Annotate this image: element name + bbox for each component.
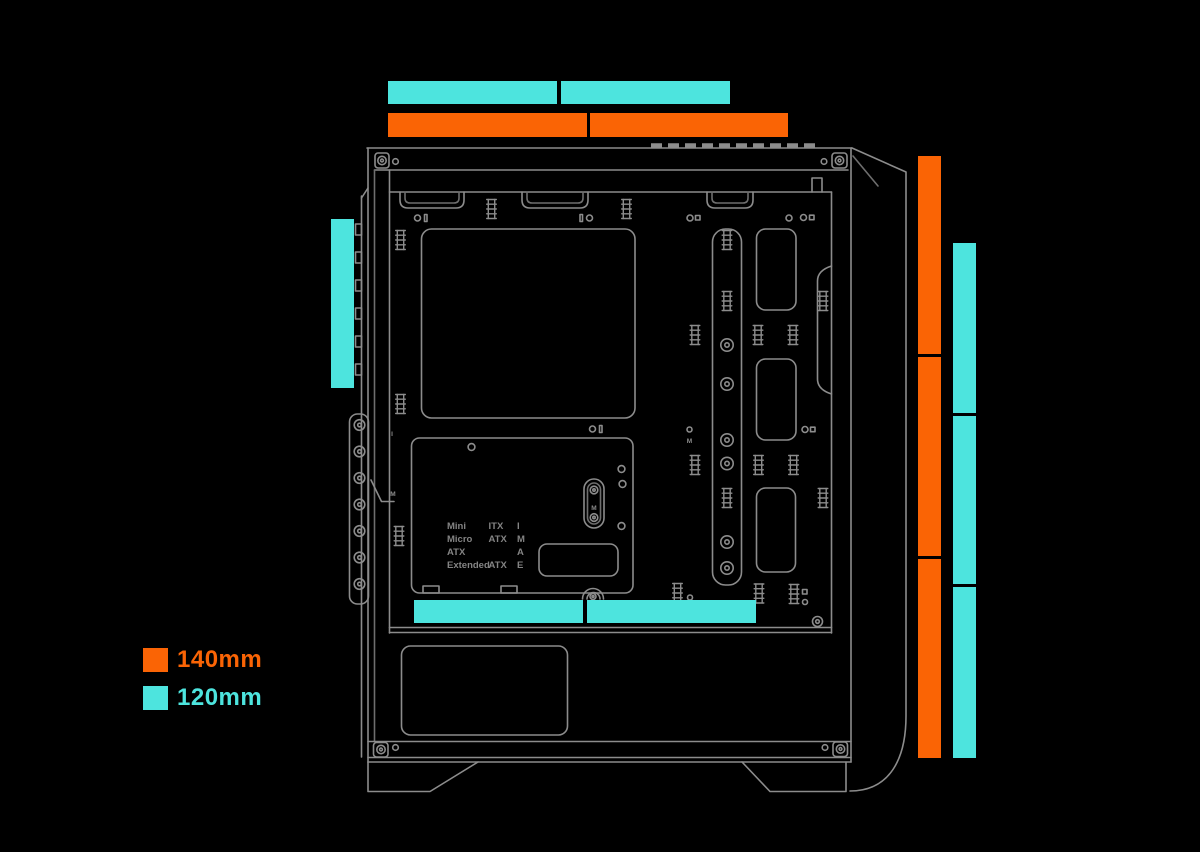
fan-slot-right-120mm [953, 416, 976, 584]
mobo-table-cell: A [517, 547, 524, 558]
corner-screw-brackets [374, 153, 848, 757]
mobo-tab [423, 586, 439, 593]
side-panel-outline [850, 148, 906, 791]
mobo-table-cell: I [517, 521, 520, 532]
fan-slot-right-140mm [918, 559, 941, 758]
interior-bottom-lines [390, 628, 832, 633]
front-panel-strip [350, 414, 369, 604]
fan-slot-top-120mm [388, 81, 557, 104]
fan-slot-left-120mm [331, 219, 354, 388]
fan-slot-right-120mm [953, 243, 976, 413]
fan-bars [331, 81, 976, 758]
standoff-pill [584, 479, 604, 528]
fan-slot-right-120mm [953, 587, 976, 758]
fan-slot-bottom-120mm [587, 600, 756, 623]
cable-cutout [539, 544, 618, 576]
case-fan-layout-diagram: MiniITXIMicroATXMATXAExtendedATXE IMMM 1… [0, 0, 1200, 852]
mobo-table-cell: Mini [447, 521, 466, 532]
side-window-cutout [422, 229, 636, 418]
right-foot [742, 762, 846, 792]
mobo-table-cell: ATX [489, 534, 508, 545]
legend-swatch-120mm [143, 686, 168, 710]
marker-letter: M [591, 505, 596, 512]
fan-slot-top-140mm [388, 113, 587, 137]
top-fan-mount-tabs [400, 192, 753, 208]
legend-item-140mm: 140mm [143, 648, 262, 672]
fan-size-legend: 140mm 120mm [143, 648, 262, 724]
mobo-table-cell: Micro [447, 534, 473, 545]
drive-tray [757, 359, 797, 440]
mobo-table-cell: Extended [447, 560, 490, 571]
legend-swatch-140mm [143, 648, 168, 672]
fan-slot-right-140mm [918, 156, 941, 354]
side-panel-inner-slant [853, 156, 878, 186]
case-bottom-edges [368, 758, 851, 763]
psu-bay [402, 646, 568, 735]
legend-item-120mm: 120mm [143, 686, 262, 710]
mobo-table-cell: M [517, 534, 525, 545]
left-foot [368, 762, 478, 792]
front-latch-ticks [356, 224, 362, 375]
drive-tray [757, 488, 796, 572]
legend-label-120mm: 120mm [177, 686, 262, 710]
fan-rail [713, 229, 742, 585]
mobo-tab [501, 586, 517, 593]
marker-letter: M [390, 491, 395, 498]
fan-slot-right-140mm [918, 357, 941, 556]
fan-slot-top-120mm [561, 81, 730, 104]
mobo-table-cell: E [517, 560, 523, 571]
drive-tray [757, 229, 797, 310]
marker-letter: M [687, 438, 692, 445]
rear-bracket [818, 266, 832, 394]
fan-slot-bottom-120mm [414, 600, 583, 623]
mobo-table-cell: ITX [489, 521, 504, 532]
mobo-table-cell: ATX [447, 547, 466, 558]
marker-letters: IMMM [390, 431, 692, 512]
interior-right-notch [812, 178, 822, 192]
marker-letter: I [391, 431, 393, 438]
legend-label-140mm: 140mm [177, 648, 262, 672]
position-markers [415, 215, 816, 595]
fan-slot-top-140mm [590, 113, 788, 137]
case-drawing [350, 146, 907, 792]
mobo-table-cell: ATX [489, 560, 508, 571]
mobo-size-table: MiniITXIMicroATXMATXAExtendedATXE [447, 521, 525, 571]
rail-fan-screws [721, 339, 733, 574]
case-diagram-svg: MiniITXIMicroATXMATXAExtendedATXE IMMM [0, 0, 1200, 852]
cable-grommet [583, 589, 604, 600]
front-bezel-top-notch [362, 188, 369, 198]
